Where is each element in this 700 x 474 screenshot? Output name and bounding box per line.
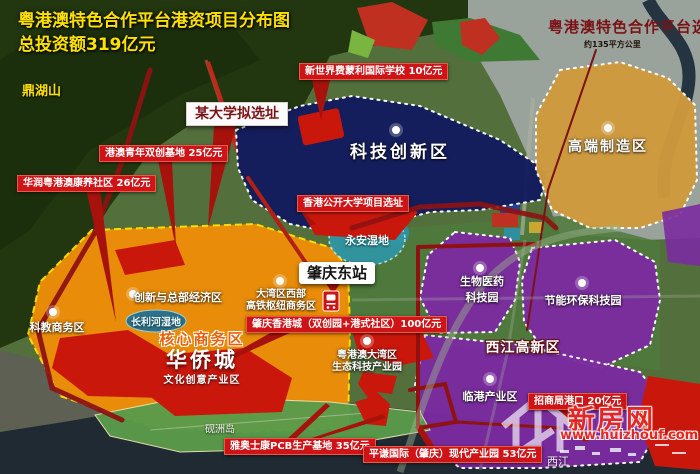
university-site-label: 某大学拟选址	[186, 102, 288, 126]
label-high-end-manufacturing: 高端制造区	[568, 136, 648, 156]
label-changli-wetland: 长利河湿地	[131, 314, 181, 329]
corner-site-title: 粤港澳特色合作平台选址	[548, 16, 700, 37]
label-energy-env: 节能环保科技园	[545, 292, 622, 308]
label-xijiang-river: 西江	[547, 453, 569, 469]
project-label-cr-wellness: 华润粤港澳康养社区 26亿元	[17, 175, 156, 192]
label-tech-innovation: 科技创新区	[350, 138, 450, 163]
label-biomedical-line2: 科技园	[460, 289, 504, 305]
label-port-industry: 临港产业区	[463, 388, 518, 404]
project-label-pcb-base: 雅奥士康PCB生产基地 35亿元	[224, 438, 376, 455]
label-eco-tech-park: 粤港澳大湾区 生态科技产业园	[332, 350, 402, 374]
project-label-hk-open-university: 香港公开大学项目选址	[297, 195, 409, 212]
label-innovation-hq: 创新与总部经济区	[134, 289, 222, 305]
corner-area-note: 约135平方公里	[584, 39, 641, 50]
label-core-business-cluster: 核心商务区 华侨城 文化创意产业区	[159, 328, 244, 386]
zone-purple-sliver-area	[662, 204, 700, 266]
project-label-hk-city: 肇庆香港城（双创园+港式社区）100亿元	[246, 316, 447, 333]
label-xijiang-hightech: 西江高新区	[486, 337, 561, 357]
red-patch-mid	[492, 213, 518, 227]
dinghu-mountain-label: 鼎湖山	[22, 80, 61, 99]
label-eco-tech-line2: 生态科技产业园	[332, 362, 402, 374]
label-yongan-wetland: 永安湿地	[345, 232, 389, 248]
label-cultural-industry: 文化创意产业区	[159, 371, 244, 386]
label-rail-hub-line1: 大湾区西部	[246, 289, 316, 301]
label-rail-hub-line2: 高铁枢纽商务区	[246, 301, 316, 313]
map-title-line2: 总投资额319亿元	[18, 30, 156, 55]
label-eco-tech-line1: 粤港澳大湾区	[332, 350, 402, 362]
train-station-icon	[323, 291, 339, 311]
label-rail-hub: 大湾区西部 高铁枢纽商务区	[246, 289, 316, 313]
label-biomedical: 生物医药 科技园	[460, 273, 504, 305]
label-yanzhou-island: 砚洲岛	[205, 421, 235, 436]
label-oct-town: 华侨城	[159, 349, 244, 371]
label-biomedical-line1: 生物医药	[460, 273, 504, 289]
map-title-line1: 粤港澳特色合作平台港资项目分布图	[18, 6, 290, 31]
project-label-youth-base: 港澳青年双创基地 25亿元	[99, 145, 228, 162]
zhaoqing-east-station-label: 肇庆东站	[299, 262, 375, 284]
project-label-pingqian-park: 平谦国际（肇庆）现代产业园 53亿元	[363, 446, 542, 463]
watermark-url: www.huizhouf.com	[560, 428, 698, 443]
map-canvas: 粤港澳特色合作平台港资项目分布图 总投资额319亿元 鼎湖山 粤港澳特色合作平台…	[0, 0, 700, 474]
label-science-edu-biz: 科教商务区	[30, 319, 85, 335]
label-core-business: 核心商务区	[159, 328, 244, 349]
project-label-intl-school: 新世界费蒙利国际学校 10亿元	[299, 63, 448, 80]
